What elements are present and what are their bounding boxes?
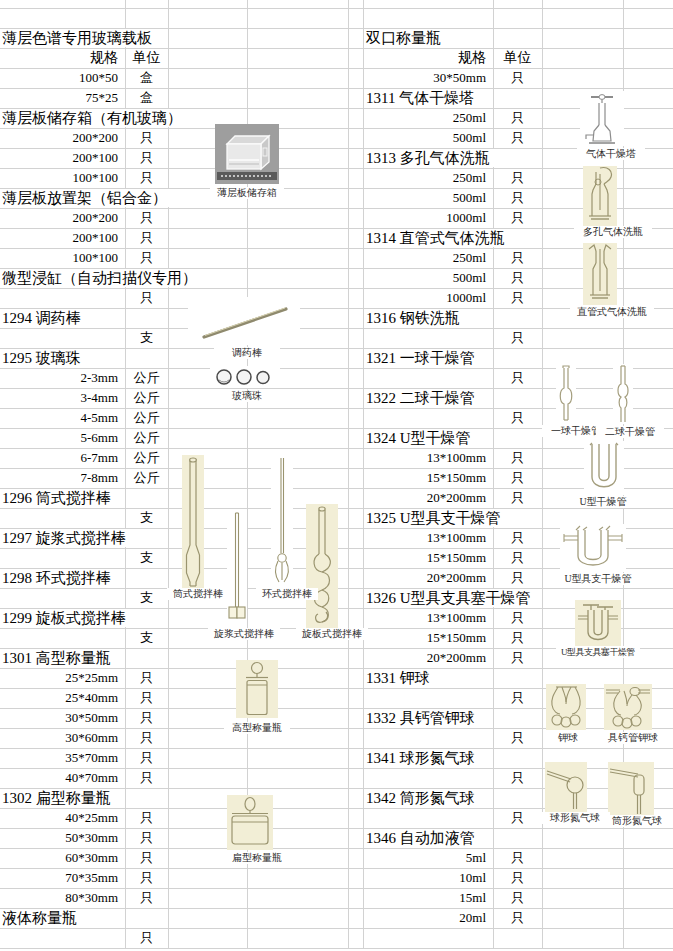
caption-medicine-rod: 调药棒 xyxy=(214,347,280,359)
right-spec-cell: 20*200mm xyxy=(363,649,489,667)
right-spec-cell: 500ml xyxy=(363,269,489,287)
left-spec-cell: 75*25 xyxy=(0,89,121,107)
right-product-title: 1321 一球干燥管 xyxy=(366,349,481,367)
right-col-header-unit: 单位 xyxy=(493,49,542,67)
left-product-title: 1298 环式搅拌棒 xyxy=(2,569,117,587)
left-unit-cell: 盒 xyxy=(125,69,168,87)
right-unit-cell: 只 xyxy=(493,809,542,827)
right-unit-cell: 只 xyxy=(493,469,542,487)
right-spec-cell: 10ml xyxy=(363,869,489,887)
left-spec-cell: 80*30mm xyxy=(0,889,121,907)
left-unit-cell: 公斤 xyxy=(125,469,168,487)
right-product-title: 1346 自动加液管 xyxy=(366,829,481,847)
left-unit-cell: 只 xyxy=(125,209,168,227)
caption-u-side-tube: U型具支干燥管 xyxy=(558,573,638,585)
caption-cylindrical-nitrogen: 筒形氮气球 xyxy=(602,815,672,827)
left-spec-cell: 200*200 xyxy=(0,129,121,147)
right-product-title: 1311 气体干燥塔 xyxy=(366,89,480,107)
right-unit-cell: 只 xyxy=(493,869,542,887)
right-unit-cell: 只 xyxy=(493,729,542,747)
right-unit-cell: 只 xyxy=(493,109,542,127)
left-spec-cell: 100*100 xyxy=(0,169,121,187)
left-unit-cell: 支 xyxy=(125,549,168,567)
right-spec-cell: 20*200mm xyxy=(363,569,489,587)
caption-spherical-nitrogen: 球形氮气球 xyxy=(540,812,610,824)
u-stoppered-drying-tube-image xyxy=(575,600,621,646)
right-product-title: 1313 多孔气体洗瓶 xyxy=(366,149,496,167)
right-spec-cell: 30*50mm xyxy=(363,69,489,87)
left-unit-cell: 公斤 xyxy=(125,449,168,467)
right-unit-cell: 只 xyxy=(493,889,542,907)
left-spec-cell: 30*60mm xyxy=(0,729,121,747)
grid-hline xyxy=(0,348,673,349)
left-unit-cell: 支 xyxy=(125,589,168,607)
right-spec-cell: 5ml xyxy=(363,849,489,867)
left-product-title: 微型浸缸（自动扫描仪专用） xyxy=(2,269,203,287)
left-spec-cell: 6-7mm xyxy=(0,449,121,467)
left-spec-cell: 3-4mm xyxy=(0,389,121,407)
right-unit-cell: 只 xyxy=(493,209,542,227)
left-spec-cell: 2-3mm xyxy=(0,369,121,387)
right-spec-cell: 250ml xyxy=(363,249,489,267)
right-unit-cell: 只 xyxy=(493,909,542,927)
left-unit-cell: 公斤 xyxy=(125,389,168,407)
left-spec-cell: 200*100 xyxy=(0,229,121,247)
left-product-title: 1297 旋浆式搅拌棒 xyxy=(2,529,132,547)
left-spec-cell: 30*50mm xyxy=(0,709,121,727)
right-spec-cell: 20*200mm xyxy=(363,489,489,507)
cylindrical-nitrogen-ball-image xyxy=(608,762,654,817)
left-unit-cell: 只 xyxy=(125,129,168,147)
caption-straight-washer: 直管式气体洗瓶 xyxy=(570,306,654,318)
left-unit-cell: 公斤 xyxy=(125,409,168,427)
caption-storage-box: 薄层板储存箱 xyxy=(210,187,284,199)
caption-porous-washer: 多孔气体洗瓶 xyxy=(574,226,652,238)
left-spec-cell: 5-6mm xyxy=(0,429,121,447)
caption-propeller-stirrer: 旋浆式搅拌棒 xyxy=(208,628,280,640)
medicine-rod-image xyxy=(188,297,300,345)
right-unit-cell: 只 xyxy=(493,849,542,867)
potash-bulb-calcium-image xyxy=(604,684,652,730)
left-unit-cell: 只 xyxy=(125,289,168,307)
left-unit-cell: 只 xyxy=(125,809,168,827)
left-product-title: 薄层板放置架（铝合金） xyxy=(2,189,173,207)
left-unit-cell: 只 xyxy=(125,869,168,887)
tube-stirrer-image xyxy=(182,455,204,588)
grid-hline xyxy=(0,288,673,289)
left-spec-cell: 200*100 xyxy=(0,149,121,167)
caption-u-tube: U型干燥管 xyxy=(568,496,638,508)
left-unit-cell: 支 xyxy=(125,329,168,347)
caption-potash-bulb: 钾球 xyxy=(548,732,588,744)
left-unit-cell: 只 xyxy=(125,709,168,727)
left-product-title: 1295 玻璃珠 xyxy=(2,349,87,367)
caption-ring-stirrer: 环式搅拌棒 xyxy=(256,588,318,600)
left-product-title: 1296 筒式搅拌棒 xyxy=(2,489,117,507)
right-unit-cell: 只 xyxy=(493,609,542,627)
left-product-title: 1299 旋板式搅拌棒 xyxy=(2,609,132,627)
flat-weighing-bottle-image xyxy=(227,795,273,850)
left-unit-cell: 支 xyxy=(125,509,168,527)
right-product-title: 1326 U型具支具塞干燥管 xyxy=(366,589,537,607)
right-spec-cell: 250ml xyxy=(363,109,489,127)
right-unit-cell: 只 xyxy=(493,189,542,207)
left-unit-cell: 只 xyxy=(125,669,168,687)
spherical-nitrogen-ball-image xyxy=(545,762,587,812)
two-ball-drying-tube-image xyxy=(613,364,633,424)
left-product-title: 1301 高型称量瓶 xyxy=(2,649,117,667)
left-product-title: 1294 调药棒 xyxy=(2,309,87,327)
right-unit-cell: 只 xyxy=(493,529,542,547)
left-spec-cell: 100*50 xyxy=(0,69,121,87)
potash-bulb-image xyxy=(546,684,586,730)
left-unit-cell: 盒 xyxy=(125,89,168,107)
right-unit-cell: 只 xyxy=(493,549,542,567)
propeller-stirrer-image xyxy=(227,510,247,628)
right-product-title: 1316 钢铁洗瓶 xyxy=(366,309,466,327)
glass-beads-image xyxy=(210,366,280,388)
left-unit-cell: 公斤 xyxy=(125,369,168,387)
grid-hline xyxy=(0,928,673,929)
left-unit-cell: 只 xyxy=(125,849,168,867)
left-product-title: 液体称量瓶 xyxy=(2,909,83,927)
left-col-header-spec: 规格 xyxy=(0,49,121,67)
left-product-title: 1302 扁型称量瓶 xyxy=(2,789,117,807)
caption-two-ball-tube: 二球干燥管 xyxy=(596,426,664,438)
right-spec-cell: 13*100mm xyxy=(363,529,489,547)
right-product-title: 双口称量瓶 xyxy=(366,29,447,47)
right-spec-cell: 15*150mm xyxy=(363,469,489,487)
left-unit-cell: 只 xyxy=(125,149,168,167)
catalog-spreadsheet: 薄层板储存箱 调药棒 玻璃珠 筒式搅拌棒 环式搅拌棒 旋浆式搅拌棒 旋板式搅拌棒… xyxy=(0,0,673,951)
grid-hline xyxy=(0,948,673,949)
left-spec-cell: 70*35mm xyxy=(0,869,121,887)
porous-gas-washing-bottle-image xyxy=(583,166,617,226)
caption-gas-drying-tower: 气体干燥塔 xyxy=(577,148,645,160)
right-unit-cell: 只 xyxy=(493,689,542,707)
right-unit-cell: 只 xyxy=(493,629,542,647)
straight-gas-washing-bottle-image xyxy=(583,243,617,305)
grid-hline xyxy=(0,8,673,9)
caption-plate-stirrer: 旋板式搅拌棒 xyxy=(296,628,368,640)
grid-vline xyxy=(168,0,169,948)
left-unit-cell: 只 xyxy=(125,889,168,907)
left-unit-cell: 只 xyxy=(125,249,168,267)
right-unit-cell: 只 xyxy=(493,569,542,587)
left-unit-cell: 只 xyxy=(125,729,168,747)
right-spec-cell: 1000ml xyxy=(363,209,489,227)
left-spec-cell: 200*200 xyxy=(0,209,121,227)
right-spec-cell: 13*100mm xyxy=(363,609,489,627)
right-product-title: 1325 U型具支干燥管 xyxy=(366,509,507,527)
right-spec-cell: 15*150mm xyxy=(363,629,489,647)
left-unit-cell: 只 xyxy=(125,769,168,787)
right-unit-cell: 只 xyxy=(493,409,542,427)
right-spec-cell: 500ml xyxy=(363,189,489,207)
left-product-title: 薄层板储存箱（有机玻璃） xyxy=(2,109,188,127)
left-unit-cell: 只 xyxy=(125,749,168,767)
ring-stirrer-image xyxy=(271,455,293,588)
caption-glass-beads: 玻璃珠 xyxy=(214,390,280,402)
left-product-title: 薄层色谱专用玻璃载板 xyxy=(2,29,158,47)
one-ball-drying-tube-image xyxy=(556,364,576,424)
right-spec-cell: 250ml xyxy=(363,169,489,187)
left-spec-cell: 40*70mm xyxy=(0,769,121,787)
tall-weighing-bottle-image xyxy=(236,660,278,718)
left-unit-cell: 只 xyxy=(125,169,168,187)
right-unit-cell: 只 xyxy=(493,329,542,347)
caption-potash-bulb-calcium: 具钙管钾球 xyxy=(600,732,666,744)
left-spec-cell: 100*100 xyxy=(0,249,121,267)
grid-hline xyxy=(0,908,673,909)
right-unit-cell: 只 xyxy=(493,649,542,667)
left-unit-cell: 支 xyxy=(125,629,168,647)
right-product-title: 1342 筒形氮气球 xyxy=(366,789,481,807)
right-unit-cell: 只 xyxy=(493,369,542,387)
left-unit-cell: 公斤 xyxy=(125,429,168,447)
left-spec-cell: 25*40mm xyxy=(0,689,121,707)
caption-tube-stirrer: 筒式搅拌棒 xyxy=(167,588,229,600)
right-product-title: 1341 球形氮气球 xyxy=(366,749,481,767)
plate-stirrer-image xyxy=(306,504,338,628)
right-unit-cell: 只 xyxy=(493,289,542,307)
caption-flat-weighing-bottle: 扁型称量瓶 xyxy=(224,852,290,864)
left-spec-cell: 7-8mm xyxy=(0,469,121,487)
left-spec-cell: 4-5mm xyxy=(0,409,121,427)
left-spec-cell: 60*30mm xyxy=(0,849,121,867)
u-side-arm-drying-tube-image xyxy=(560,524,626,572)
right-unit-cell: 只 xyxy=(493,769,542,787)
right-unit-cell: 只 xyxy=(493,69,542,87)
left-unit-cell: 只 xyxy=(125,229,168,247)
right-unit-cell: 只 xyxy=(493,269,542,287)
right-unit-cell: 只 xyxy=(493,169,542,187)
right-product-title: 1332 具钙管钾球 xyxy=(366,709,481,727)
left-unit-cell: 只 xyxy=(125,689,168,707)
u-drying-tube-image xyxy=(584,441,624,495)
left-spec-cell: 35*70mm xyxy=(0,749,121,767)
left-unit-cell: 只 xyxy=(125,929,168,947)
left-col-header-unit: 单位 xyxy=(125,49,168,67)
gas-drying-tower-image xyxy=(580,91,624,146)
right-spec-cell: 1000ml xyxy=(363,289,489,307)
right-spec-cell: 500ml xyxy=(363,129,489,147)
grid-vline xyxy=(348,0,349,948)
left-spec-cell: 50*30mm xyxy=(0,829,121,847)
grid-hline xyxy=(0,328,673,329)
right-spec-cell: 15ml xyxy=(363,889,489,907)
caption-u-stoppered-tube: U型具支具塞干燥管 xyxy=(556,646,640,658)
right-unit-cell: 只 xyxy=(493,449,542,467)
right-product-title: 1324 U型干燥管 xyxy=(366,429,477,447)
grid-vline xyxy=(542,0,543,948)
right-spec-cell: 20ml xyxy=(363,909,489,927)
left-spec-cell: 40*25mm xyxy=(0,809,121,827)
caption-tall-weighing-bottle: 高型称量瓶 xyxy=(224,722,290,734)
right-col-header-spec: 规格 xyxy=(363,49,489,67)
right-unit-cell: 只 xyxy=(493,129,542,147)
right-product-title: 1331 钾球 xyxy=(366,669,436,687)
right-product-title: 1314 直管式气体洗瓶 xyxy=(366,229,511,247)
storage-box-image xyxy=(215,124,279,184)
right-unit-cell: 只 xyxy=(493,249,542,267)
left-unit-cell: 只 xyxy=(125,829,168,847)
right-spec-cell: 15*150mm xyxy=(363,549,489,567)
left-spec-cell: 25*25mm xyxy=(0,669,121,687)
right-product-title: 1322 二球干燥管 xyxy=(366,389,481,407)
right-unit-cell: 只 xyxy=(493,489,542,507)
right-spec-cell: 13*100mm xyxy=(363,449,489,467)
